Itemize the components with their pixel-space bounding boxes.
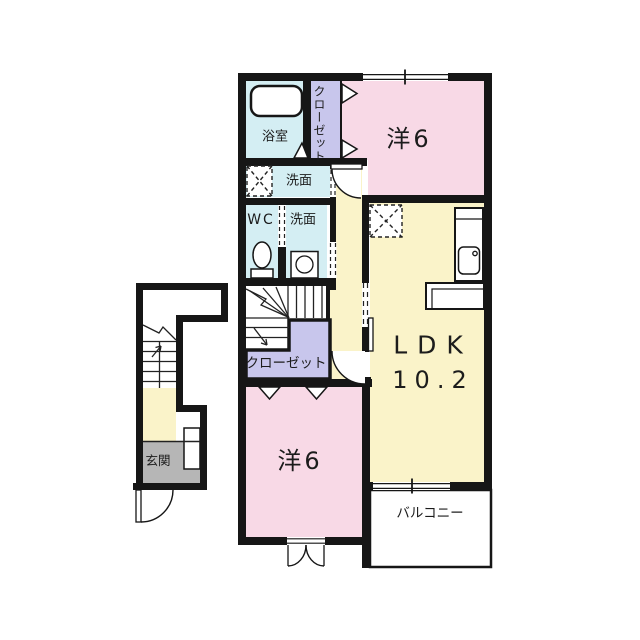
label-closet-upper: クローゼット [313,85,325,163]
kitchen-unit [455,208,483,281]
bedroom-upper-area2 [368,158,484,197]
shoe-cabinet [184,428,200,469]
balcony-area [370,490,491,567]
label-ldk-area: 10.2 [392,368,473,392]
bathtub [251,86,302,116]
window-bedroom-lower-double-door [287,537,325,566]
access-hatch-washroom [247,166,272,196]
label-entrance: 玄関 [145,455,170,468]
label-washroom-upper: 洗面 [286,175,312,188]
door-genkan-entry [136,485,176,523]
kitchen-counter [426,283,484,309]
label-closet-lower: クローゼット [246,357,327,371]
label-bedroom-lower: 洋6 [277,449,322,473]
label-ldk: LDK [393,333,473,358]
toilet [251,242,273,278]
balcony [370,490,491,567]
label-washroom-lower: 洗面 [290,214,316,227]
faucet [473,251,477,255]
entrance-hall-area [143,388,176,442]
label-bedroom-upper: 洋6 [386,127,431,151]
label-wc: WC [247,213,275,227]
label-bath: 浴室 [262,131,288,144]
access-hatch-ldk [370,205,402,237]
floor-plan: 浴室 クローゼット 洋6 洗面 WC 洗面 クローゼット 洋6 LDK 10.2… [0,0,640,640]
washing-machine [291,252,318,279]
label-balcony: バルコニー [396,507,463,521]
stairs-entrance [143,325,176,388]
